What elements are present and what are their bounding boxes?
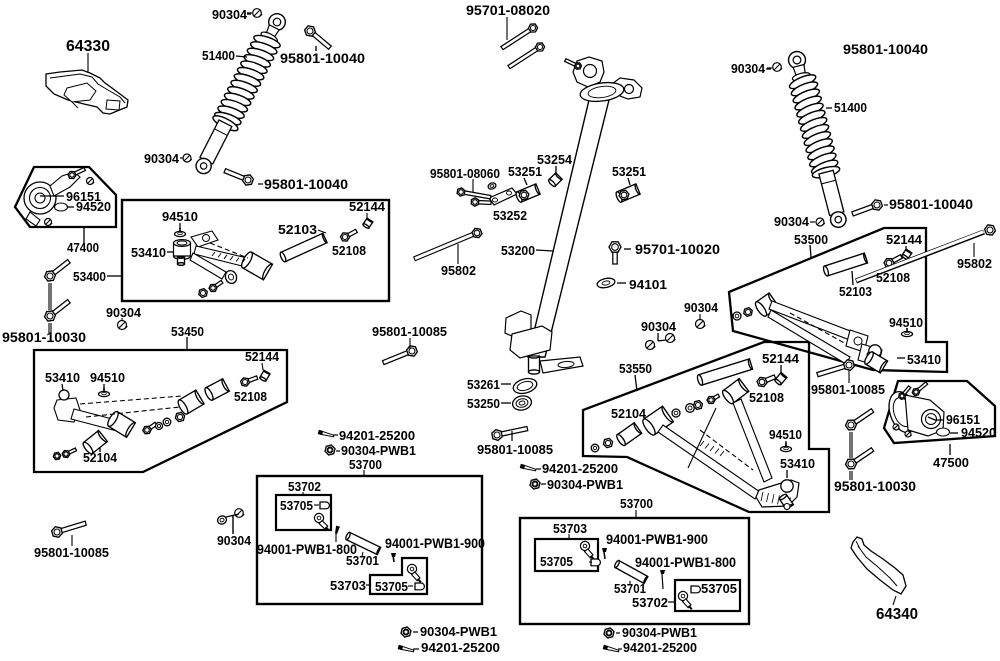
svg-text:95801-10085: 95801-10085 bbox=[34, 545, 109, 560]
svg-text:53410: 53410 bbox=[780, 456, 815, 471]
svg-text:52108: 52108 bbox=[332, 243, 366, 258]
svg-text:53200: 53200 bbox=[501, 243, 535, 258]
svg-text:53410: 53410 bbox=[131, 245, 166, 260]
svg-text:95801-10085: 95801-10085 bbox=[372, 324, 447, 339]
svg-text:53251: 53251 bbox=[612, 164, 646, 179]
svg-text:95801-10040: 95801-10040 bbox=[843, 41, 928, 57]
svg-text:95701-10020: 95701-10020 bbox=[635, 241, 720, 257]
svg-text:53252: 53252 bbox=[493, 208, 527, 223]
svg-text:52108: 52108 bbox=[234, 389, 267, 404]
svg-text:53700: 53700 bbox=[349, 457, 382, 472]
svg-text:53702: 53702 bbox=[632, 595, 668, 610]
svg-text:52108: 52108 bbox=[876, 270, 910, 285]
svg-text:53410: 53410 bbox=[45, 370, 80, 385]
svg-text:90304-PWB1: 90304-PWB1 bbox=[420, 624, 497, 639]
svg-text:90304: 90304 bbox=[217, 533, 252, 548]
svg-text:90304: 90304 bbox=[684, 300, 719, 315]
svg-text:95801-10030: 95801-10030 bbox=[2, 329, 86, 345]
svg-text:95801-10085: 95801-10085 bbox=[477, 442, 553, 457]
svg-text:53500: 53500 bbox=[794, 232, 828, 247]
svg-text:90304: 90304 bbox=[774, 214, 810, 229]
svg-text:52104: 52104 bbox=[83, 450, 118, 465]
svg-text:53400: 53400 bbox=[73, 269, 106, 284]
svg-text:53450: 53450 bbox=[171, 324, 204, 339]
svg-text:94520: 94520 bbox=[76, 199, 111, 214]
svg-text:52144: 52144 bbox=[349, 199, 386, 214]
svg-text:53251: 53251 bbox=[508, 164, 542, 179]
svg-text:52144: 52144 bbox=[762, 351, 800, 366]
svg-text:53254: 53254 bbox=[537, 152, 573, 167]
svg-text:95801-10085: 95801-10085 bbox=[811, 382, 885, 397]
svg-text:90304: 90304 bbox=[731, 61, 766, 76]
svg-text:94001-PWB1-900: 94001-PWB1-900 bbox=[385, 535, 485, 551]
svg-text:95801-10040: 95801-10040 bbox=[889, 196, 973, 212]
svg-text:95802: 95802 bbox=[441, 263, 476, 278]
svg-text:94520: 94520 bbox=[961, 425, 996, 440]
svg-text:90304-PWB1: 90304-PWB1 bbox=[341, 443, 416, 458]
svg-text:52103: 52103 bbox=[278, 222, 317, 237]
svg-text:52144: 52144 bbox=[886, 232, 923, 247]
svg-text:94510: 94510 bbox=[889, 315, 923, 330]
svg-text:94001-PWB1-800: 94001-PWB1-800 bbox=[257, 541, 357, 557]
svg-text:53701: 53701 bbox=[614, 581, 646, 596]
svg-text:94201-25200: 94201-25200 bbox=[623, 640, 697, 655]
svg-text:64330: 64330 bbox=[66, 38, 110, 55]
svg-text:53703: 53703 bbox=[330, 578, 366, 593]
svg-text:94101: 94101 bbox=[629, 277, 667, 292]
svg-text:52104: 52104 bbox=[611, 406, 647, 421]
svg-text:53705: 53705 bbox=[280, 498, 313, 513]
svg-text:51400: 51400 bbox=[834, 100, 867, 115]
svg-text:94001-PWB1-900: 94001-PWB1-900 bbox=[606, 531, 708, 547]
svg-text:94001-PWB1-800: 94001-PWB1-800 bbox=[635, 554, 736, 570]
svg-text:53702: 53702 bbox=[288, 479, 321, 494]
svg-text:53705: 53705 bbox=[375, 579, 408, 594]
svg-text:52144: 52144 bbox=[245, 349, 280, 364]
svg-text:51400: 51400 bbox=[202, 48, 235, 63]
svg-text:95801-08060: 95801-08060 bbox=[430, 166, 500, 181]
svg-text:94201-25200: 94201-25200 bbox=[421, 640, 500, 655]
svg-text:53250: 53250 bbox=[467, 396, 500, 411]
svg-text:94510: 94510 bbox=[162, 209, 198, 224]
svg-text:52108: 52108 bbox=[749, 390, 784, 405]
svg-text:94510: 94510 bbox=[769, 427, 802, 442]
svg-text:53705: 53705 bbox=[540, 554, 573, 569]
svg-text:47400: 47400 bbox=[67, 240, 99, 255]
svg-text:90304: 90304 bbox=[106, 305, 142, 320]
svg-text:94510: 94510 bbox=[90, 370, 125, 385]
svg-text:90304: 90304 bbox=[641, 319, 677, 334]
svg-text:95801-10030: 95801-10030 bbox=[834, 478, 916, 494]
svg-text:90304-PWB1: 90304-PWB1 bbox=[622, 625, 697, 640]
svg-text:90304-PWB1: 90304-PWB1 bbox=[547, 477, 623, 492]
svg-text:94201-25200: 94201-25200 bbox=[339, 428, 415, 443]
svg-text:53703: 53703 bbox=[553, 521, 587, 536]
svg-text:95801-10040: 95801-10040 bbox=[264, 176, 348, 192]
svg-text:95701-08020: 95701-08020 bbox=[466, 2, 550, 18]
svg-text:53705: 53705 bbox=[701, 581, 737, 596]
svg-text:95801-10040: 95801-10040 bbox=[280, 50, 365, 66]
svg-text:64340: 64340 bbox=[876, 606, 918, 623]
svg-text:47500: 47500 bbox=[933, 455, 969, 470]
svg-text:95802: 95802 bbox=[957, 256, 992, 271]
svg-text:94201-25200: 94201-25200 bbox=[542, 461, 618, 476]
svg-text:53550: 53550 bbox=[619, 361, 652, 376]
svg-text:52103: 52103 bbox=[839, 284, 872, 299]
svg-text:90304: 90304 bbox=[144, 151, 180, 166]
svg-text:53410: 53410 bbox=[907, 352, 941, 367]
svg-text:53700: 53700 bbox=[620, 496, 653, 511]
svg-text:90304: 90304 bbox=[212, 7, 248, 22]
svg-text:53261: 53261 bbox=[467, 377, 500, 392]
